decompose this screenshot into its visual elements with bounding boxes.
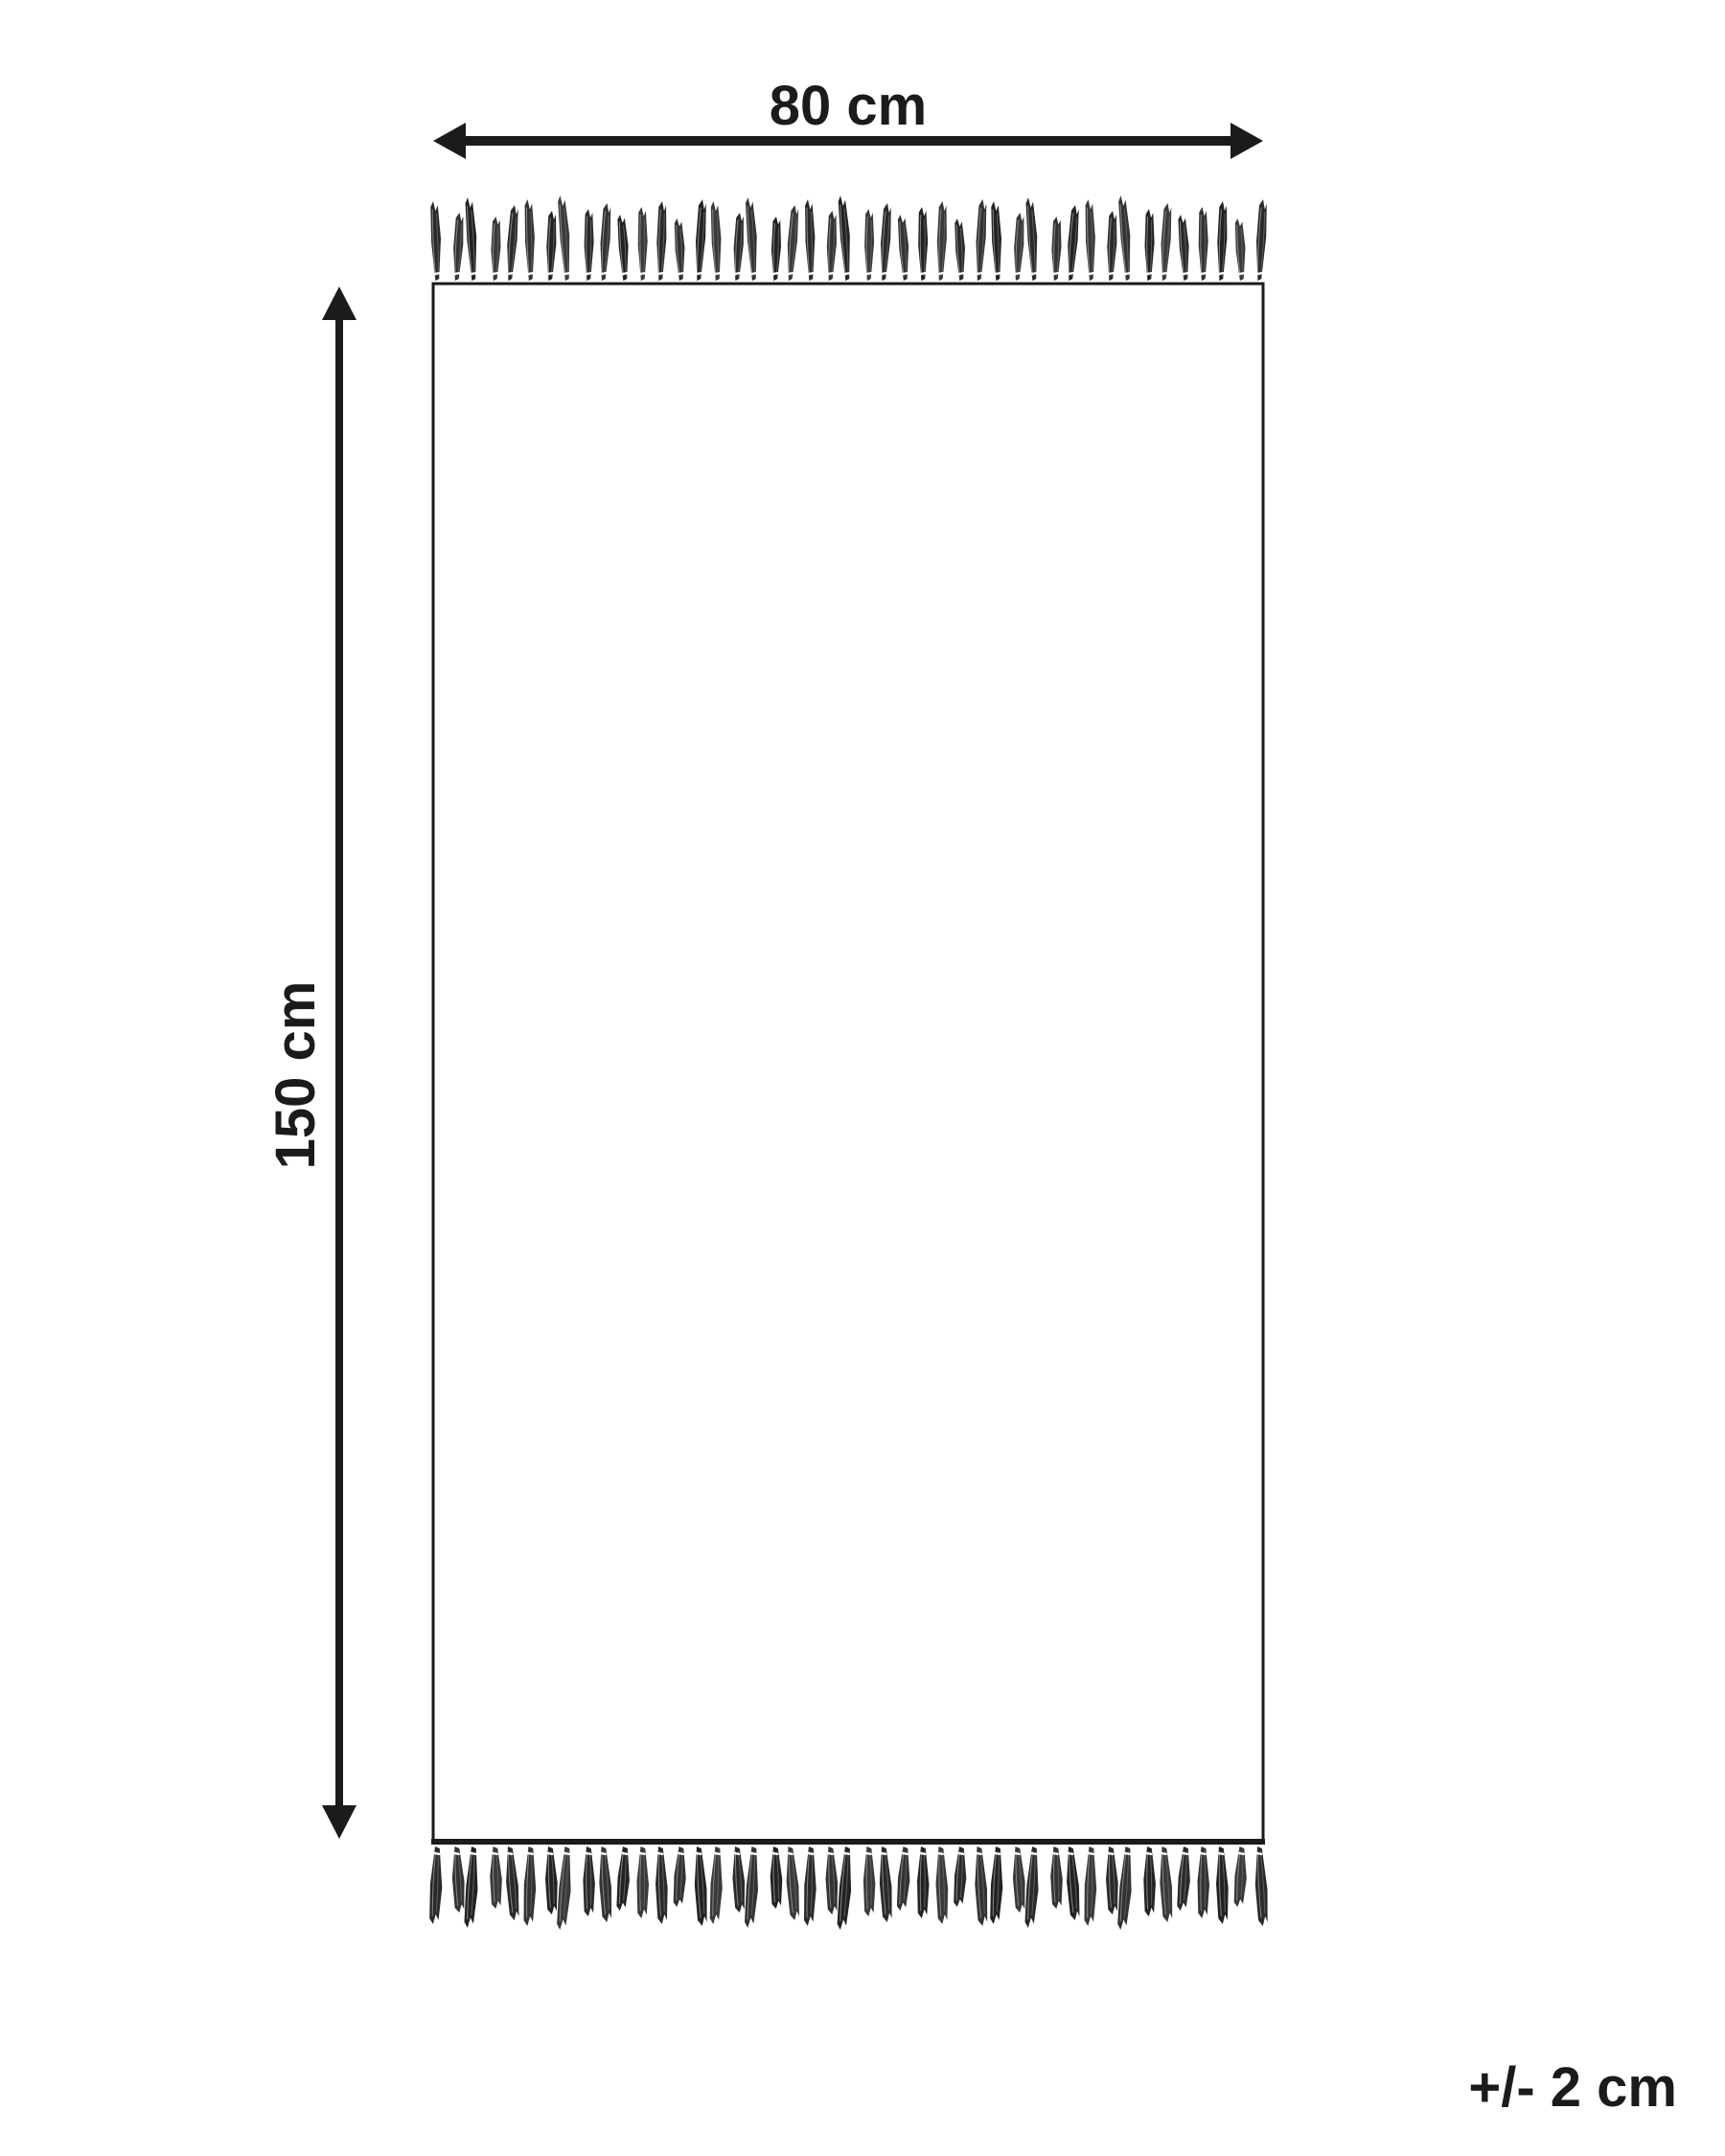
tolerance-label: +/- 2 cm [1468, 2060, 1677, 2116]
height-dimension-arrow [322, 287, 356, 1839]
height-dimension-label: 150 cm [268, 981, 324, 1170]
rug-diagram-graphic [0, 0, 1725, 2156]
rug-dimension-diagram: 80 cm 150 cm +/- 2 cm [0, 0, 1725, 2156]
bottom-fringe [429, 1846, 1267, 1930]
arrow-up-head [322, 287, 356, 320]
top-fringe [430, 195, 1267, 281]
width-dimension-label: 80 cm [433, 79, 1263, 134]
rug-body [433, 284, 1263, 1842]
arrow-down-head [322, 1805, 356, 1839]
